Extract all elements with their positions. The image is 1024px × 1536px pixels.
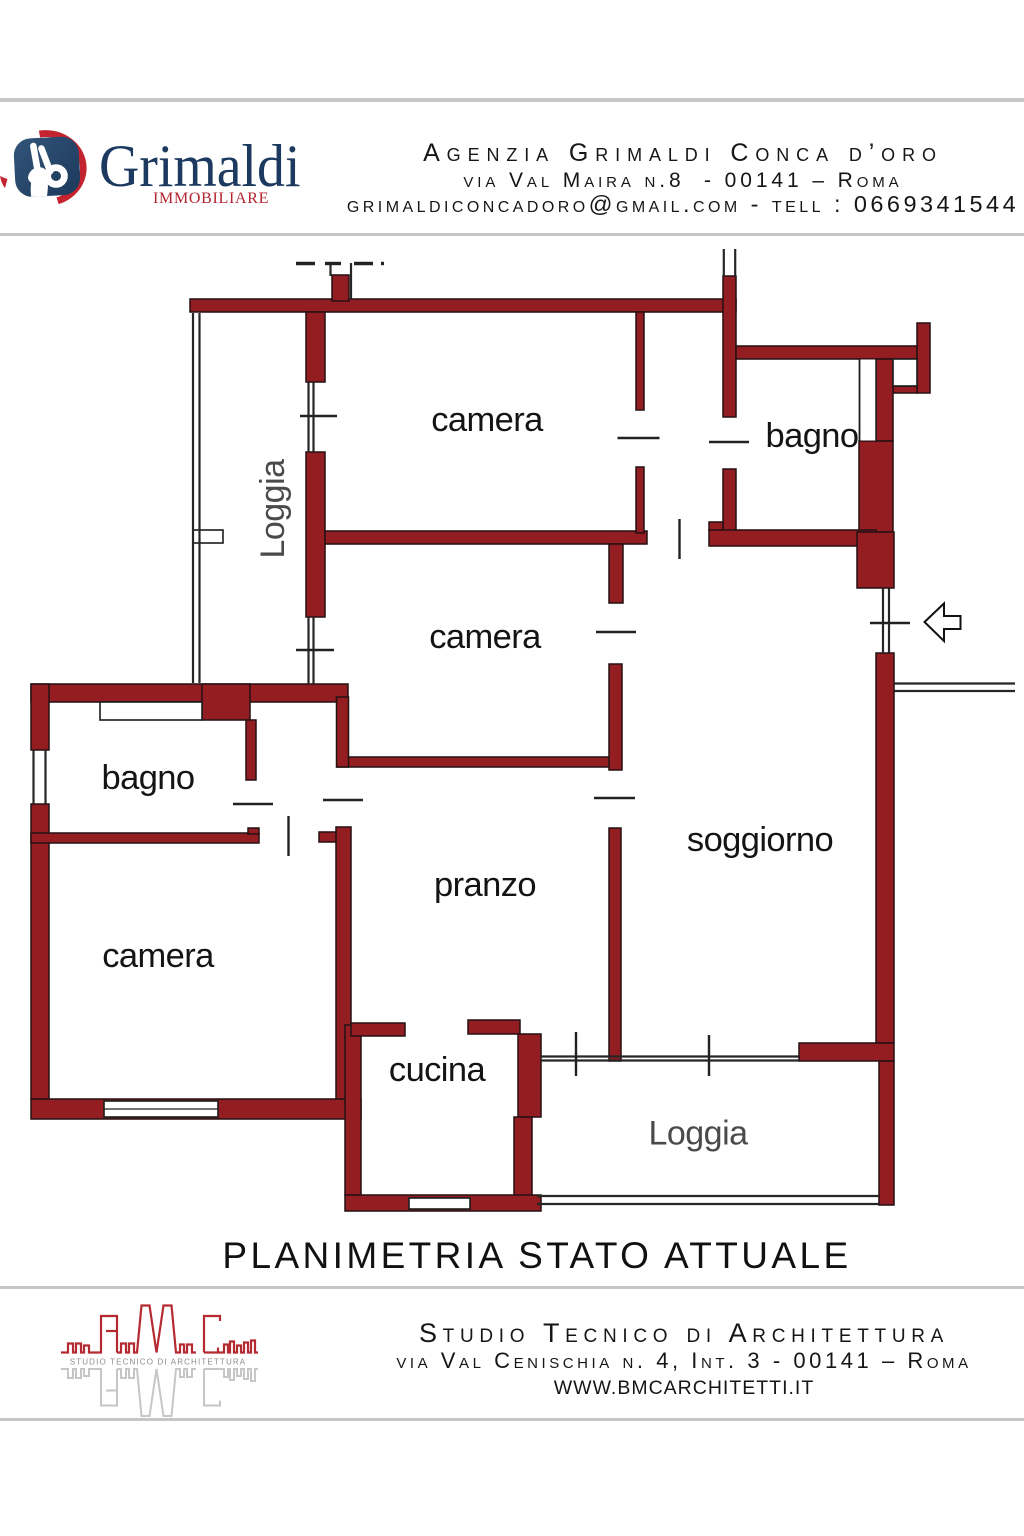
svg-text:Loggia: Loggia bbox=[648, 1115, 748, 1153]
svg-text:camera: camera bbox=[102, 937, 215, 975]
svg-text:camera: camera bbox=[429, 618, 542, 656]
svg-text:pranzo: pranzo bbox=[434, 866, 536, 904]
svg-text:soggiorno: soggiorno bbox=[687, 821, 833, 859]
svg-text:camera: camera bbox=[431, 401, 544, 439]
svg-text:Loggia: Loggia bbox=[254, 459, 292, 559]
svg-text:bagno: bagno bbox=[766, 417, 859, 455]
svg-text:bagno: bagno bbox=[102, 759, 195, 797]
svg-text:cucina: cucina bbox=[389, 1051, 487, 1089]
svg-text:STUDIO TECNICO DI ARCHITETTURA: STUDIO TECNICO DI ARCHITETTURA bbox=[70, 1358, 247, 1367]
